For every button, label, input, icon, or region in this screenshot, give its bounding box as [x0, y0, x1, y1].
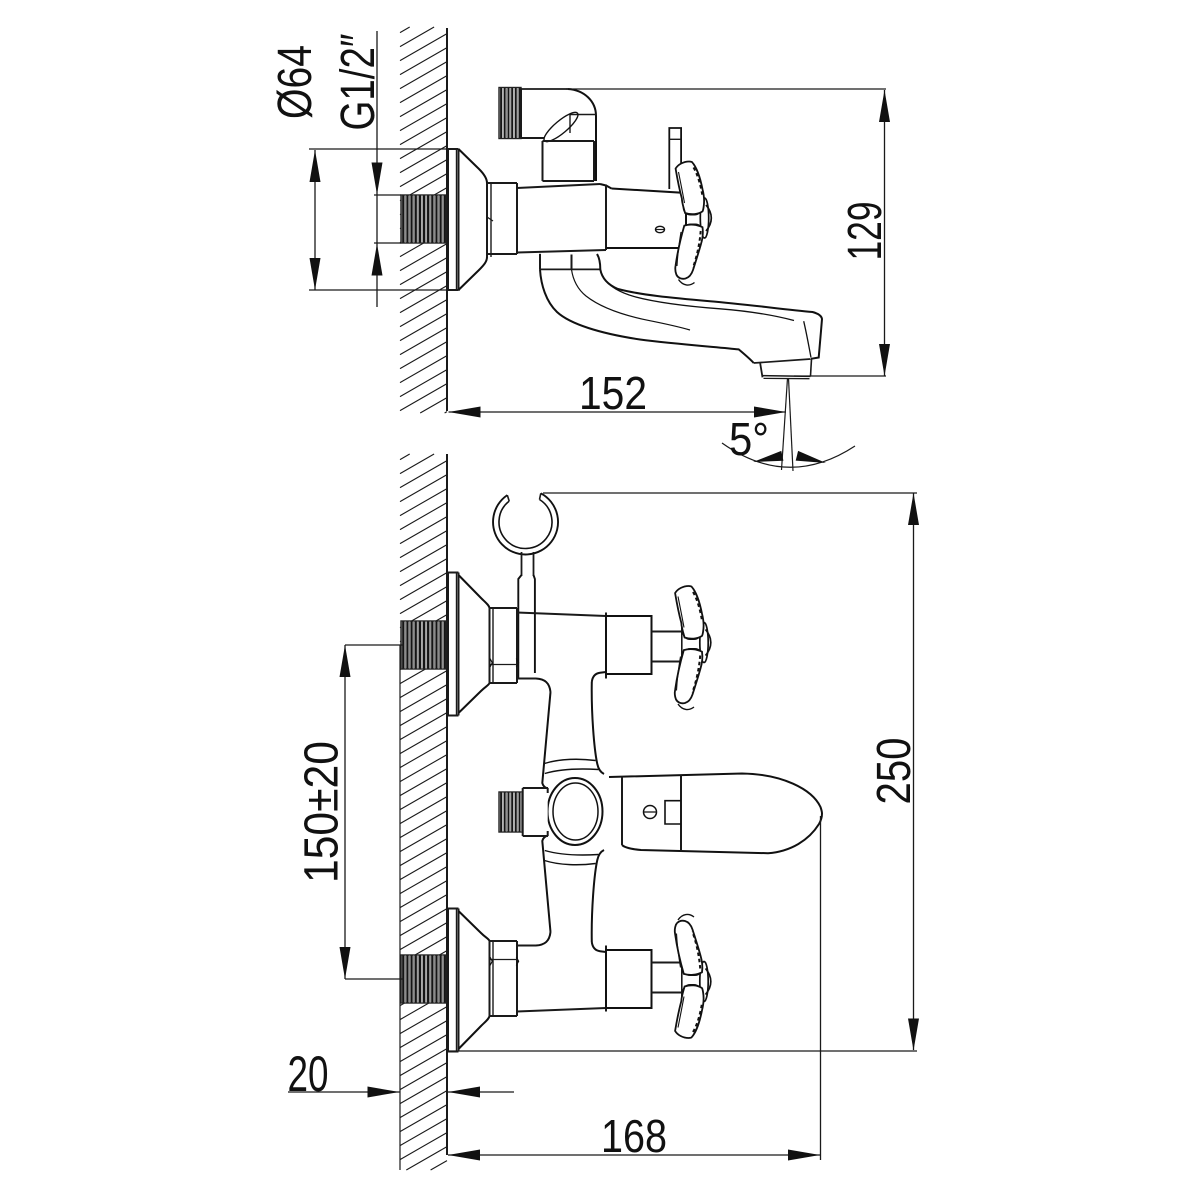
svg-text:152: 152 — [579, 367, 647, 419]
svg-text:5°: 5° — [729, 413, 769, 465]
svg-text:129: 129 — [839, 202, 892, 261]
svg-text:20: 20 — [288, 1046, 329, 1102]
svg-text:168: 168 — [601, 1110, 667, 1162]
svg-text:250: 250 — [868, 738, 921, 805]
svg-text:Ø64: Ø64 — [269, 45, 322, 119]
svg-text:150±20: 150±20 — [296, 741, 349, 883]
svg-text:G1/2″: G1/2″ — [332, 34, 385, 131]
